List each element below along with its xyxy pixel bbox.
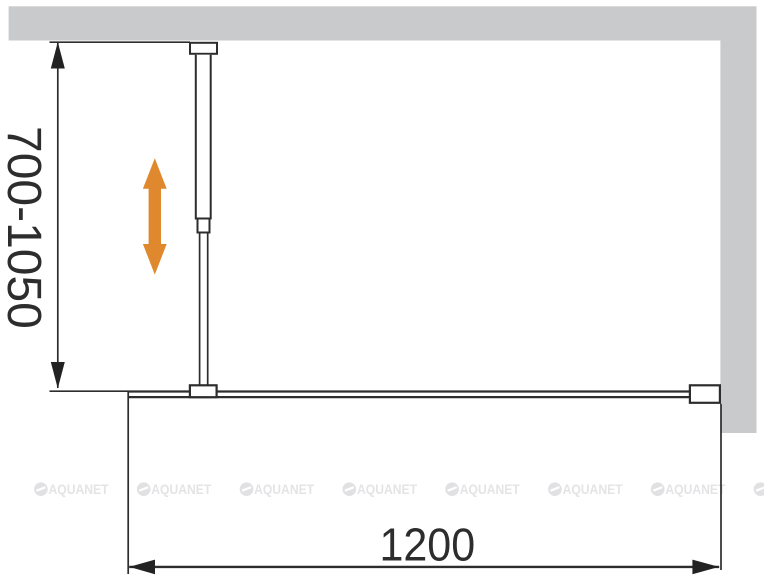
svg-text:AQUANET: AQUANET [49, 481, 109, 497]
svg-text:AQUANET: AQUANET [665, 481, 725, 497]
svg-text:AQUANET: AQUANET [357, 481, 417, 497]
svg-text:1200: 1200 [379, 520, 475, 571]
svg-text:AQUANET: AQUANET [563, 481, 623, 497]
svg-text:AQUANET: AQUANET [254, 481, 314, 497]
svg-text:AQUANET: AQUANET [460, 481, 520, 497]
svg-text:AQUANET: AQUANET [151, 481, 211, 497]
svg-text:700-1050: 700-1050 [0, 126, 50, 329]
